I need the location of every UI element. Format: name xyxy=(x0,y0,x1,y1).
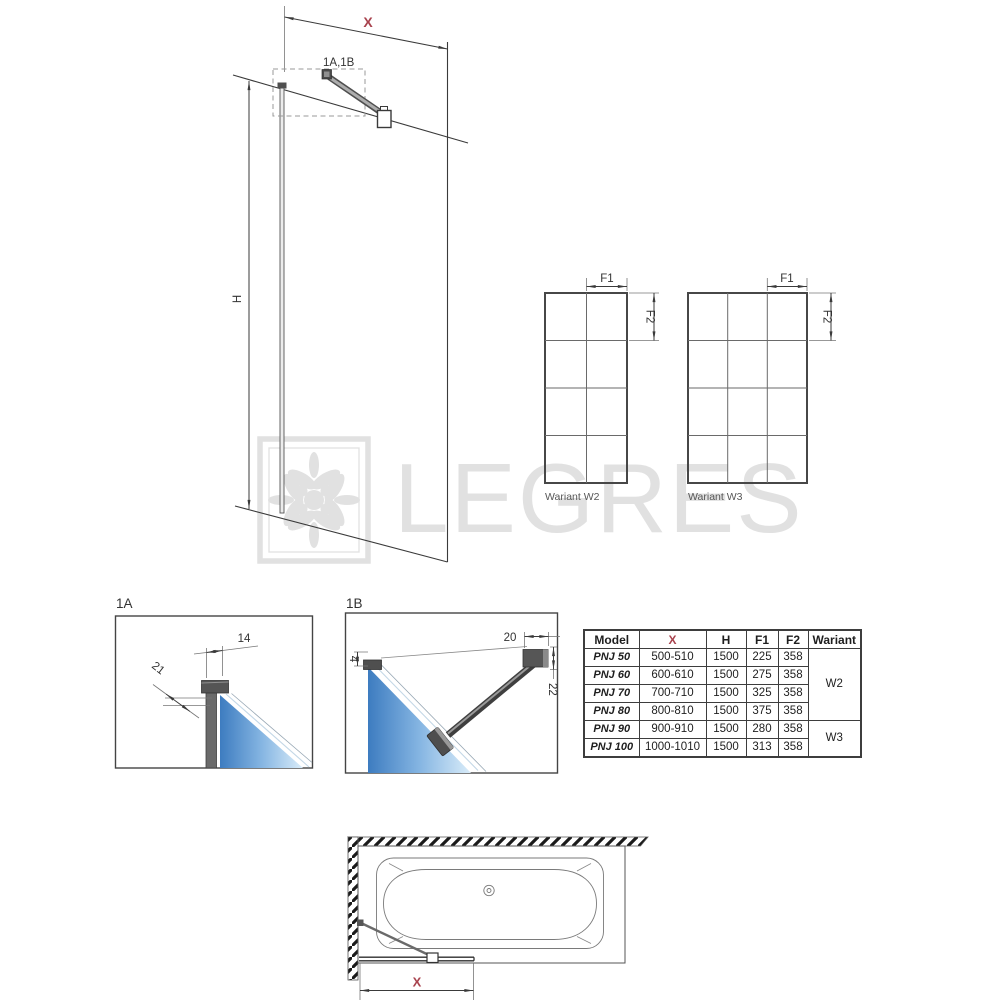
h-cell: 1500 xyxy=(706,649,746,667)
w2-variant-label: Wariant W2 xyxy=(545,491,600,503)
detail-1a-view: 1A 14 21 xyxy=(116,596,313,768)
back-wall-hatch xyxy=(348,837,648,846)
col-header-wariant: Wariant xyxy=(808,630,861,649)
x-cell: 500-510 xyxy=(639,649,706,667)
elevation-view: X H 1A,1B xyxy=(232,6,468,562)
detail-1b-view: 1B 4 20 xyxy=(346,596,561,773)
glass-cap-section xyxy=(364,660,382,670)
model-cell: PNJ 50 xyxy=(584,649,639,667)
x-cell: 600-610 xyxy=(639,667,706,685)
wall-profile-section xyxy=(206,692,217,768)
h-cell: 1500 xyxy=(706,685,746,703)
table-row: PNJ 90 900-910 1500 280 358 W3 xyxy=(584,721,861,739)
detail-1b-bracket-height-dim: 22 xyxy=(546,683,558,696)
col-header-model: Model xyxy=(584,630,639,649)
h-cell: 1500 xyxy=(706,703,746,721)
w3-f1-dim-label: F1 xyxy=(780,273,793,285)
top-view-width-dim-label: X xyxy=(413,975,422,990)
x-cell: 800-810 xyxy=(639,703,706,721)
w2-f1-dim-label: F1 xyxy=(600,273,613,285)
col-header-f1: F1 xyxy=(746,630,778,649)
detail-1a-title: 1A xyxy=(116,596,133,611)
f1-cell: 313 xyxy=(746,739,778,758)
detail-1b-title: 1B xyxy=(346,596,363,611)
table-row: PNJ 50 500-510 1500 225 358 W2 xyxy=(584,649,861,667)
elevation-width-dim-label: X xyxy=(363,14,373,30)
side-wall-hatch xyxy=(348,837,358,980)
model-cell: PNJ 80 xyxy=(584,703,639,721)
h-cell: 1500 xyxy=(706,739,746,758)
f2-cell: 358 xyxy=(778,649,808,667)
w3-variant-label: Wariant W3 xyxy=(688,491,743,503)
detail-1b-bracket-width-dim: 20 xyxy=(504,632,517,644)
col-header-f2: F2 xyxy=(778,630,808,649)
col-header-x: X xyxy=(639,630,706,649)
wall-bracket-section xyxy=(523,650,548,668)
support-arm xyxy=(329,77,383,114)
technical-drawing-page: LEGRES X xyxy=(0,0,1000,1000)
elevation-height-dim-label: H xyxy=(232,295,244,303)
bathtub-outline xyxy=(358,846,625,963)
f2-cell: 358 xyxy=(778,685,808,703)
model-cell: PNJ 70 xyxy=(584,685,639,703)
f2-cell: 358 xyxy=(778,703,808,721)
f1-cell: 280 xyxy=(746,721,778,739)
spec-table-header-row: Model X H F1 F2 Wariant xyxy=(584,630,861,649)
w2-f2-dim-label: F2 xyxy=(644,310,656,323)
f1-cell: 325 xyxy=(746,685,778,703)
f2-cell: 358 xyxy=(778,739,808,758)
wariant-group-cell: W2 xyxy=(808,649,861,721)
f1-cell: 375 xyxy=(746,703,778,721)
detail-callout-label: 1A,1B xyxy=(323,57,355,69)
x-cell: 1000-1010 xyxy=(639,739,706,758)
col-header-h: H xyxy=(706,630,746,649)
w3-f2-dim-label: F2 xyxy=(821,310,833,323)
variant-w2-grid: F1 F2 Wariant W2 xyxy=(545,273,659,503)
f1-cell: 225 xyxy=(746,649,778,667)
wariant-group-cell: W3 xyxy=(808,721,861,758)
model-cell: PNJ 60 xyxy=(584,667,639,685)
f2-cell: 358 xyxy=(778,721,808,739)
wall-anchor-top-view xyxy=(357,920,364,927)
variant-w3-grid: F1 F2 Wariant W3 xyxy=(688,273,836,503)
x-cell: 900-910 xyxy=(639,721,706,739)
x-cell: 700-710 xyxy=(639,685,706,703)
h-cell: 1500 xyxy=(706,667,746,685)
spec-table: Model X H F1 F2 Wariant PNJ 50 500-510 1… xyxy=(583,629,862,758)
detail-1a-width-dim: 14 xyxy=(238,633,251,645)
wall-profile-cap xyxy=(278,83,287,89)
detail-1b-gap-dim: 4 xyxy=(347,656,359,663)
f2-cell: 358 xyxy=(778,667,808,685)
model-cell: PNJ 100 xyxy=(584,739,639,758)
model-cell: PNJ 90 xyxy=(584,721,639,739)
drawing-svg: X H 1A,1B F1 xyxy=(0,0,1000,1000)
bathtub-top-view: X xyxy=(348,837,648,1000)
clamp-top-view xyxy=(427,953,438,963)
f1-cell: 275 xyxy=(746,667,778,685)
h-cell: 1500 xyxy=(706,721,746,739)
